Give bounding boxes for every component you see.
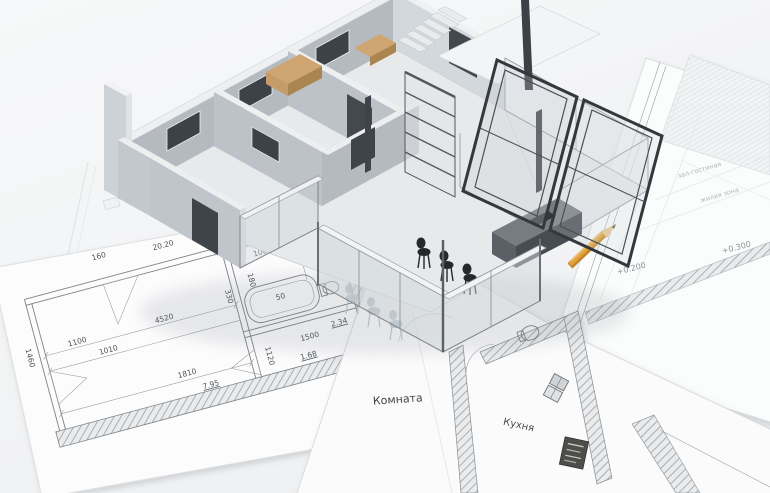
title-stamp [559, 437, 588, 469]
tiny-stamp [103, 197, 120, 209]
render-scene: зал-гостиная жилая зона +0.300 +0.200 [0, 0, 770, 493]
architectural-render: зал-гостиная жилая зона +0.300 +0.200 [0, 0, 770, 493]
door-frame [365, 95, 371, 173]
